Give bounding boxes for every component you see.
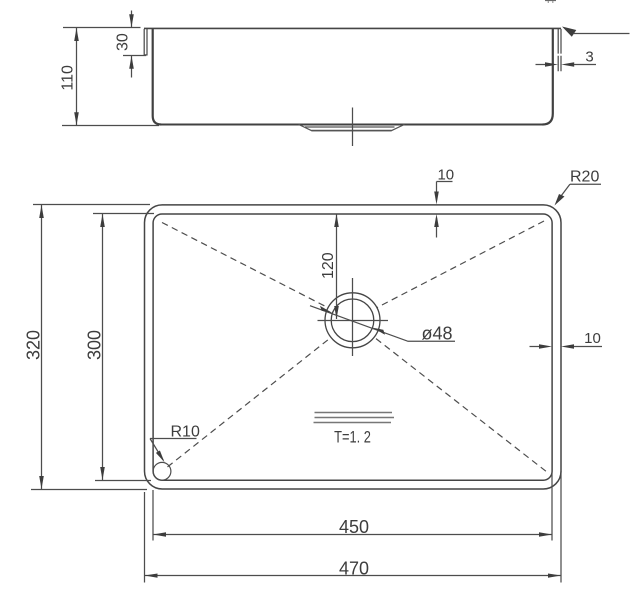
svg-text:ø48: ø48 <box>421 324 452 344</box>
svg-text:450: 450 <box>339 517 369 537</box>
svg-text:30: 30 <box>115 33 132 51</box>
svg-text:R20: R20 <box>570 169 599 186</box>
svg-text:10: 10 <box>437 167 454 184</box>
svg-text:110: 110 <box>60 65 77 91</box>
svg-text:R10: R10 <box>171 424 200 441</box>
svg-text:120: 120 <box>320 252 337 279</box>
svg-text:470: 470 <box>339 559 369 579</box>
svg-text:320: 320 <box>24 330 44 360</box>
svg-text:T=1. 2: T=1. 2 <box>334 429 371 447</box>
svg-text:3: 3 <box>585 49 593 66</box>
svg-text:10: 10 <box>584 330 601 347</box>
svg-text:300: 300 <box>85 330 105 360</box>
